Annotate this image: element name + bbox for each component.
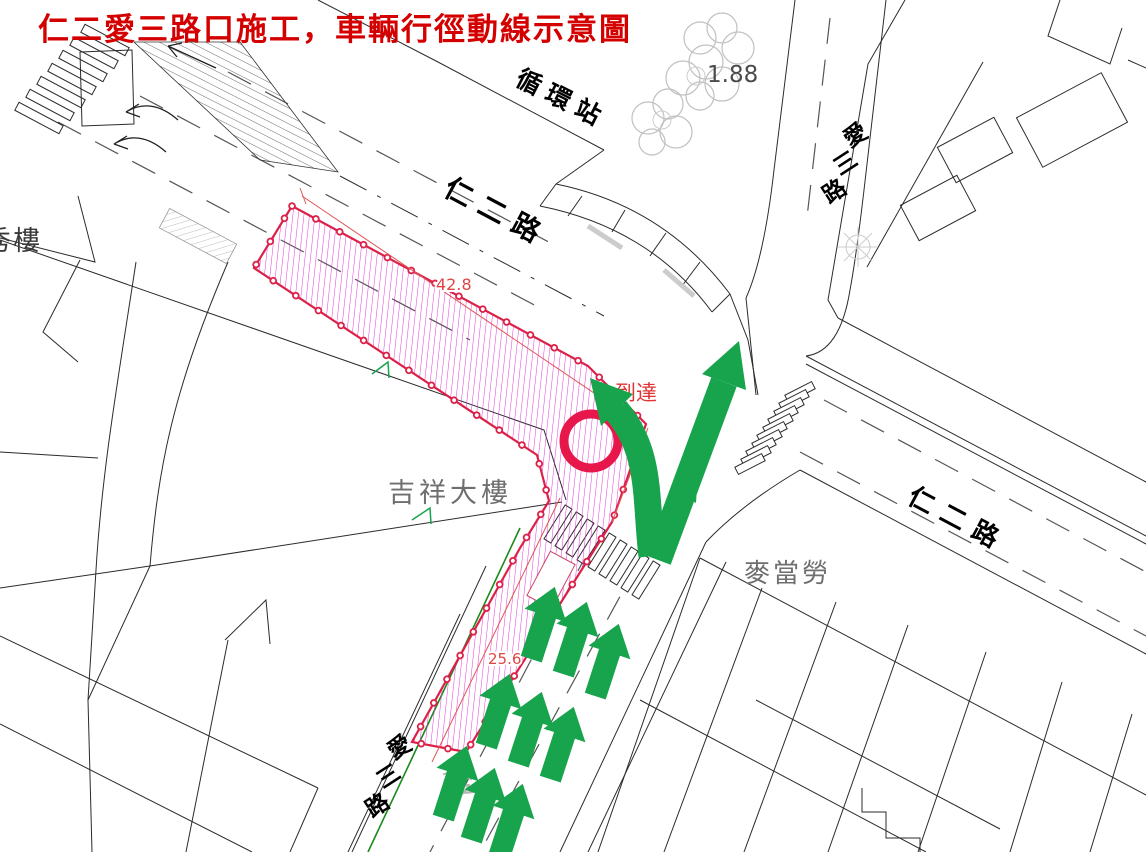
- svg-text:三: 三: [372, 760, 405, 794]
- arcade-strip: [159, 208, 236, 263]
- utility-pole-icon: [838, 227, 878, 267]
- ren-er-road-east-label: 仁二路: [903, 481, 1013, 559]
- svg-text:路: 路: [818, 173, 853, 209]
- recycle-station-label: 循環站: [511, 64, 612, 135]
- dimension-42-8: 42.8: [436, 275, 472, 294]
- jixiang-building-label: 吉祥大樓: [388, 478, 512, 509]
- construction-diagram: 42.8 25.6 8 到達 愛: [0, 0, 1146, 852]
- mcdonalds-label: 麥當勞: [744, 559, 831, 589]
- ren-er-road-west-label: 仁二路: [439, 171, 555, 254]
- diagram-title: 仁二愛三路口施工，車輛行徑動線示意圖: [38, 4, 632, 49]
- map-canvas: 42.8 25.6 8 到達 愛: [0, 0, 1146, 852]
- chevron-gore: [134, 42, 338, 172]
- crosswalk-east-icon: [735, 382, 815, 475]
- building-partial-label: 秀樓: [0, 226, 42, 257]
- ai-san-road-south-label: 愛 三 路: [361, 731, 417, 823]
- elevation-label: 1.88: [707, 62, 758, 88]
- svg-text:愛: 愛: [839, 119, 872, 153]
- dimension-25-6: 25.6: [488, 650, 521, 668]
- ai-san-road-north-label: 愛 三 路: [818, 119, 873, 209]
- svg-text:路: 路: [361, 787, 396, 823]
